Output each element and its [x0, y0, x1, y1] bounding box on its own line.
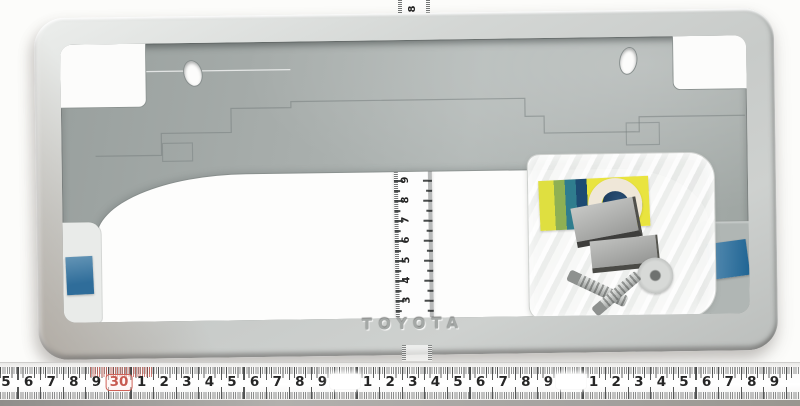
ruler-washed-number-box — [556, 374, 586, 389]
ruler-number: 1 — [589, 374, 598, 390]
ruler-number: 5 — [1, 374, 10, 390]
ruler-number: 4 — [431, 374, 440, 390]
ruler-5mm-tick — [394, 190, 400, 192]
ruler-number: 6 — [24, 374, 33, 390]
ruler-number: 6 — [476, 374, 485, 390]
ruler-cm-tick — [424, 280, 433, 282]
ruler-number: 4 — [657, 374, 666, 390]
ruler-cm-tick — [394, 200, 403, 202]
ruler-mm-ticks — [402, 345, 406, 361]
ruler-number: 1 — [137, 374, 146, 390]
ruler-number: 8 — [69, 374, 78, 390]
ruler-5mm-tick — [428, 310, 434, 312]
hardware-bag — [527, 152, 717, 321]
ruler-cm-tick — [395, 220, 404, 222]
ruler-number: 8 — [521, 374, 530, 390]
ruler-number: 5 — [679, 374, 688, 390]
ruler-number: 2 — [385, 374, 394, 390]
blue-tape-left — [65, 256, 94, 295]
ruler-cm-tick — [395, 260, 404, 262]
ruler-number: 7 — [498, 374, 507, 390]
ruler-5mm-tick — [427, 250, 433, 252]
frame-backing-plate: 9876543 — [60, 35, 750, 323]
ruler-mm-ticks-bottom — [0, 392, 800, 399]
ruler-5mm-tick — [396, 310, 402, 312]
ruler-5mm-tick — [395, 230, 401, 232]
ruler-cm-tick — [394, 180, 403, 182]
ruler-number: 9 — [318, 374, 327, 390]
ruler-5mm-tick — [395, 270, 401, 272]
plate-cutout-top-right — [672, 35, 747, 90]
ruler-number: 6 — [250, 374, 259, 390]
ruler-5mm-tick — [395, 290, 401, 292]
ruler-5mm-tick — [427, 230, 433, 232]
ruler-cm-tick — [424, 240, 433, 242]
ruler-number: 3 — [634, 374, 643, 390]
ruler-5mm-tick — [426, 190, 432, 192]
ruler-number: 3 — [182, 374, 191, 390]
vertical-ruler-window-segment: 9876543 — [394, 172, 434, 319]
ruler-number: 7 — [46, 374, 55, 390]
ruler-5mm-tick — [427, 290, 433, 292]
ruler-cm-tick — [425, 300, 434, 302]
ruler-number: 8 — [747, 374, 756, 390]
ruler-number: 9 — [92, 374, 101, 390]
ruler-number: 3 — [408, 374, 417, 390]
ruler-number: 1 — [363, 374, 372, 390]
ruler-cm-tick — [395, 240, 404, 242]
ruler-highlight-number: 30 — [106, 374, 133, 391]
ruler-number: 9 — [770, 374, 779, 390]
bottom-ruler: 5678930123456789123456789123456789 — [0, 362, 800, 402]
ruler-number: 8 — [295, 374, 304, 390]
product-photo-scene: 8 9876543 — [0, 0, 800, 406]
ruler-cm-tick — [424, 260, 433, 262]
vertical-ruler-scale: 9876543 — [394, 172, 432, 173]
ruler-cm-tick — [395, 280, 404, 282]
ruler-number: 7 — [724, 374, 733, 390]
ruler-number: 5 — [453, 374, 462, 390]
ruler-number: 2 — [611, 374, 620, 390]
ruler-number: 4 — [205, 374, 214, 390]
vertical-ruler-gap-segment — [402, 345, 432, 361]
ruler-number: 6 — [702, 374, 711, 390]
ruler-5mm-tick — [426, 210, 432, 212]
ruler-washed-number-box — [330, 374, 360, 389]
ruler-number: 2 — [159, 374, 168, 390]
ruler-cm-tick — [424, 220, 433, 222]
ruler-5mm-tick — [427, 270, 433, 272]
ruler-number: 5 — [227, 374, 236, 390]
ruler-cm-tick — [423, 180, 432, 182]
license-plate-frame: 9876543 TOYOTA — [34, 8, 779, 360]
ruler-cm-tick — [396, 300, 405, 302]
ruler-5mm-tick — [395, 250, 401, 252]
ruler-cm-tick — [423, 200, 432, 202]
table-shadow-strip — [0, 400, 800, 406]
plate-cutout-top-left — [60, 44, 147, 109]
metal-washer — [637, 257, 673, 293]
ruler-number: 7 — [272, 374, 281, 390]
ruler-number: 9 — [544, 374, 553, 390]
ruler-5mm-tick — [394, 210, 400, 212]
ruler-mm-ticks — [428, 345, 432, 361]
frame-brand-embossing: TOYOTA — [333, 314, 493, 334]
